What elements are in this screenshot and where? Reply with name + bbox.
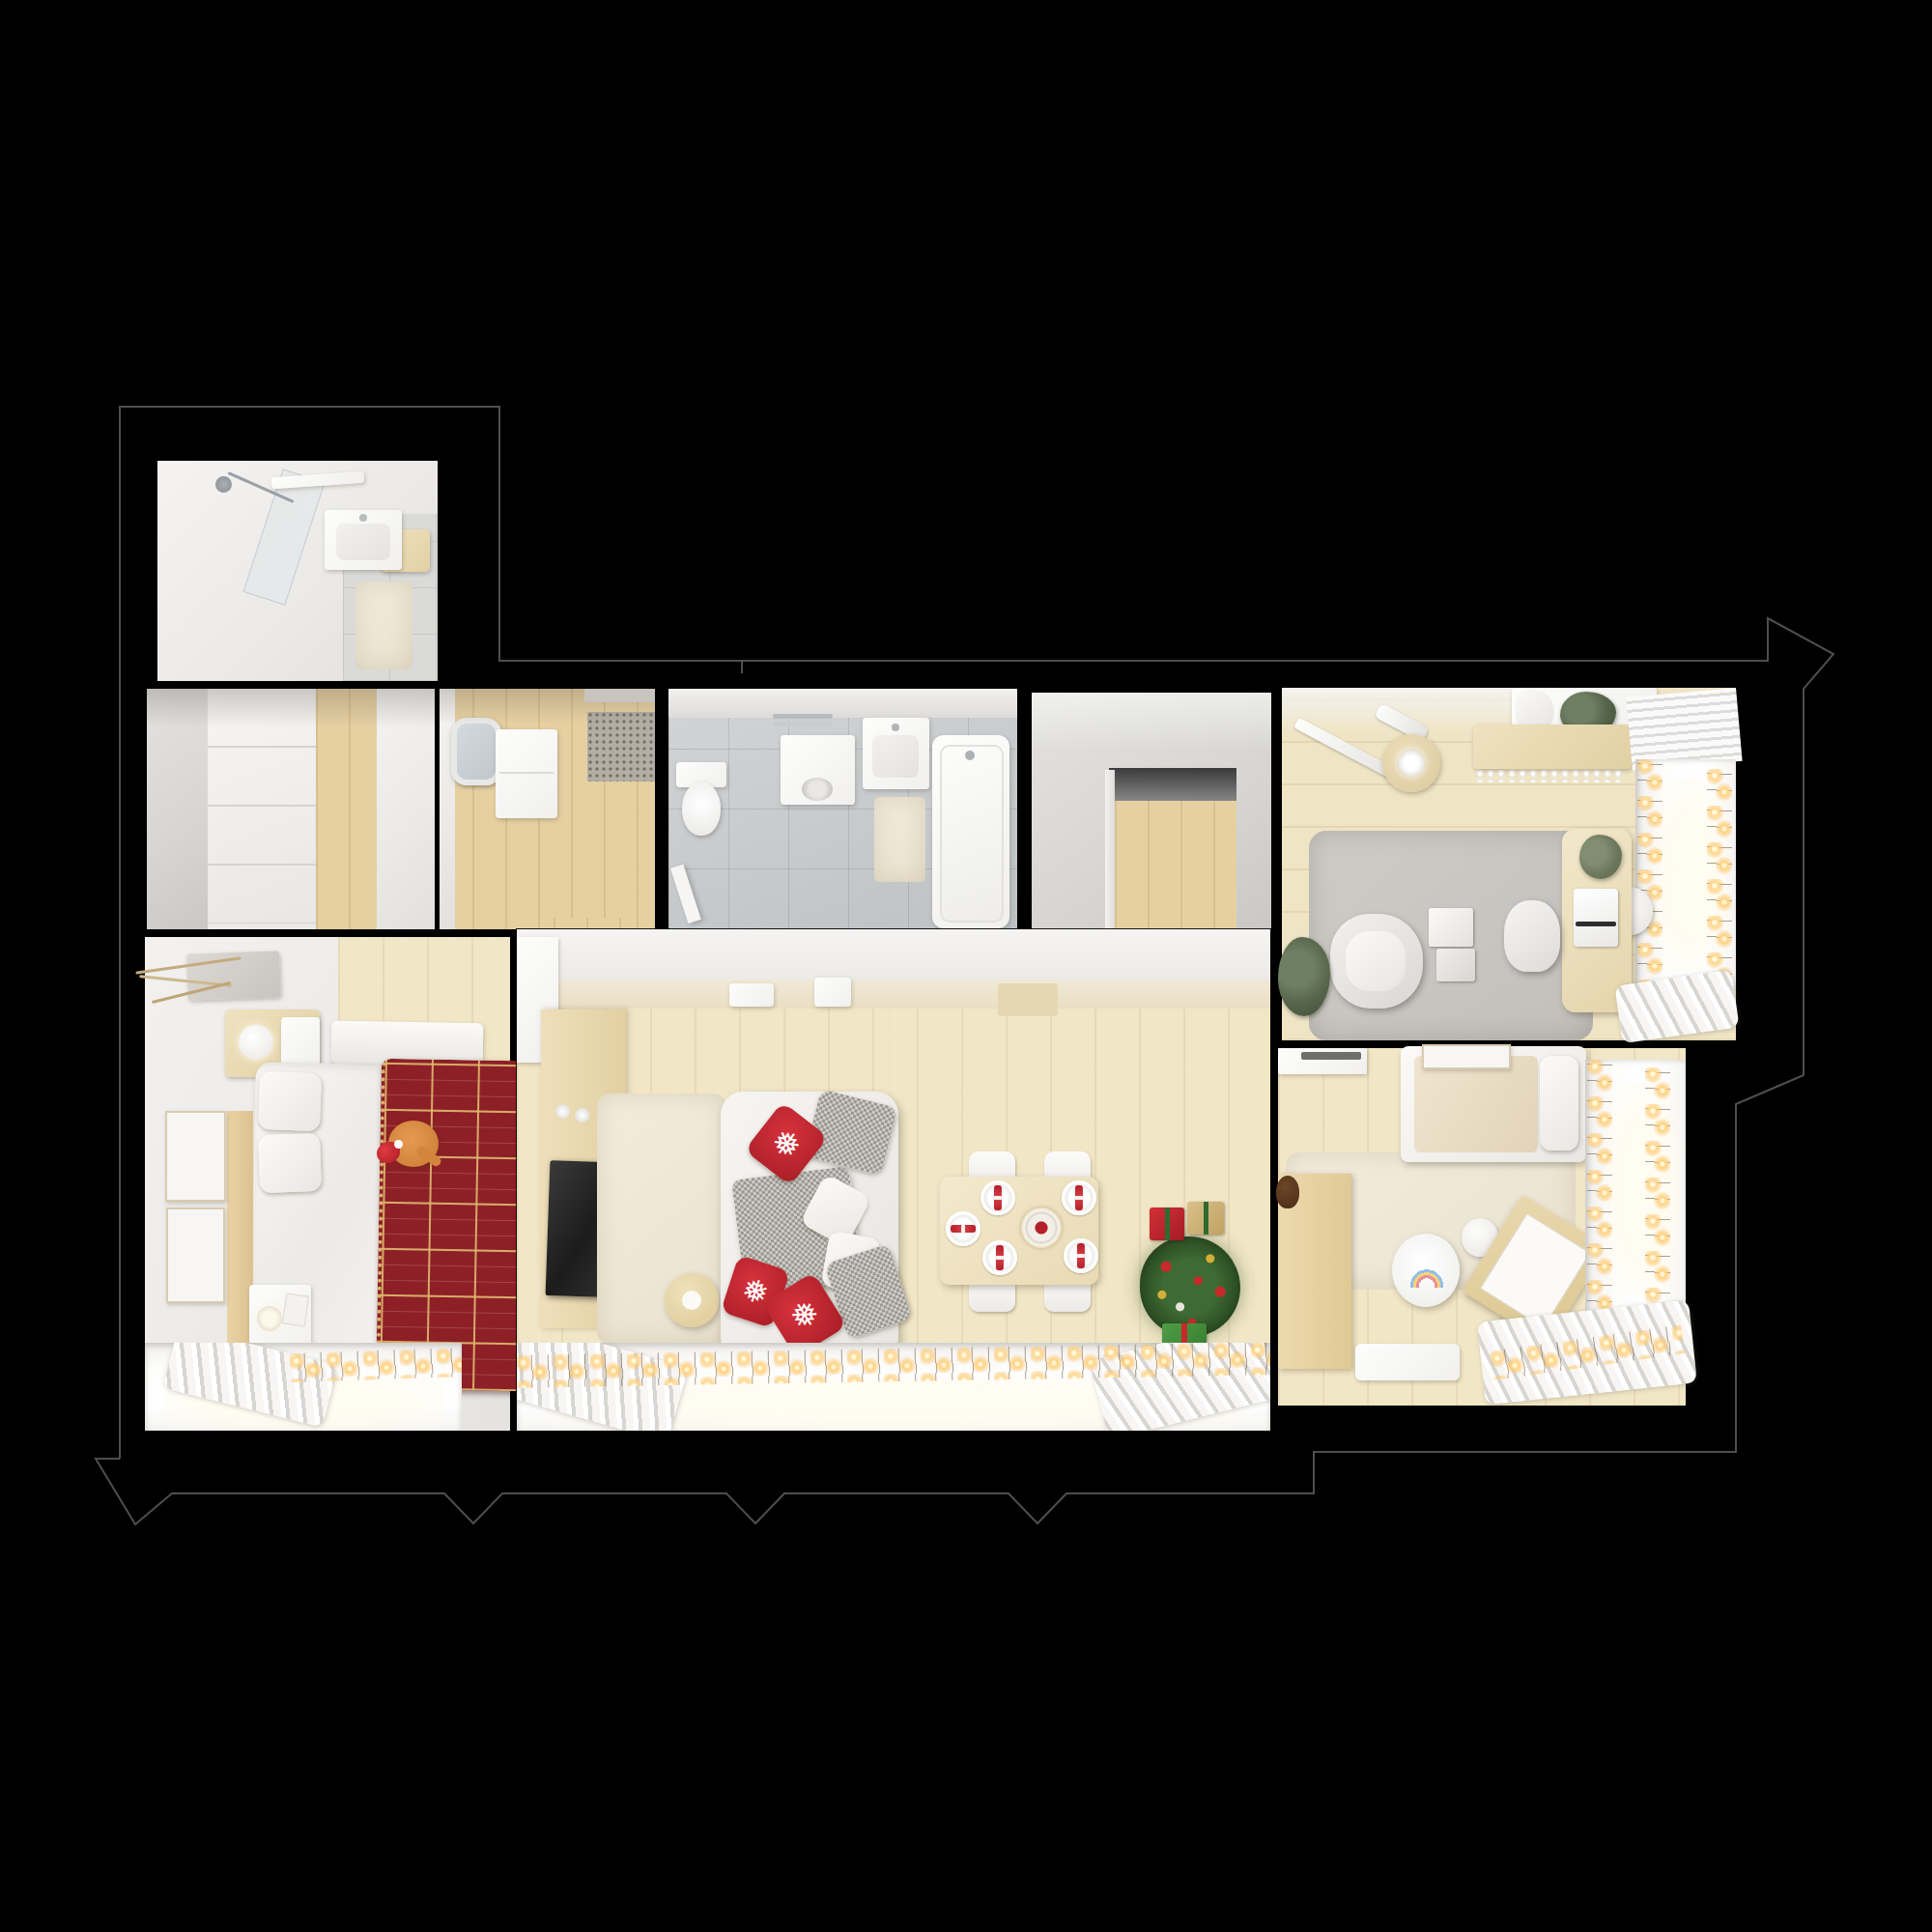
bathroom [668,689,1017,929]
kids-window-lights-2 [1645,1067,1670,1315]
laptop-hinge [1576,922,1616,926]
living-window-band [517,1343,1270,1431]
shower-glass-screen [242,469,325,606]
table-centerpiece [1021,1207,1062,1248]
armchair-cushion [1346,931,1406,991]
gift-gold [1187,1202,1224,1235]
office-window-lights [1637,759,1662,987]
thermostat-plate [814,978,851,1007]
office-cabinet [1473,724,1632,769]
spiky-ornament-icon [1397,749,1426,778]
glitter-garland [1475,769,1625,782]
kids-bed-blanket [1414,1056,1538,1152]
living-doormat [998,983,1058,1016]
kids-bed [1401,1046,1586,1162]
cat-on-bed [377,1117,444,1180]
living-top-wall-beige [517,980,1270,1009]
bedroom [145,937,510,1431]
snowflake-icon: ❅ [782,1291,826,1338]
wardrobe-room [147,689,435,929]
gift-ribbon [1204,1202,1208,1235]
wall-art-frame-2 [166,1207,225,1303]
desk-greenery [1579,835,1622,879]
kids-window-lights [1587,1060,1612,1319]
candle-icon [257,1306,282,1331]
bathroom-sink [863,718,929,789]
office-chair [1492,891,1570,987]
kitchen-doorway-floor [1115,801,1236,932]
dresser-seam [499,772,554,774]
light-switch-plate [729,983,774,1007]
magazine [282,1293,309,1326]
bedroom-window-lights [290,1348,462,1382]
bathroom-sink-basin [872,735,919,778]
kids-drawers [1355,1344,1460,1380]
office-armchair [1330,914,1423,1009]
kitchen-entry-highlight [1032,693,1271,751]
shower-room [157,461,438,681]
place-setting-1 [946,1211,980,1246]
office-window-lights-2 [1707,769,1732,987]
washing-machine [781,735,855,805]
bathroom-sink-faucet-icon [892,724,899,731]
dining-table [940,1177,1098,1285]
bathroom-top-wall [668,689,1017,718]
tv-speaker-icon-2 [575,1108,589,1122]
christmas-tree [1140,1236,1240,1337]
bed-pillow-1 [258,1071,322,1131]
sofa: ❅ ❅ ❅ [721,1092,898,1360]
wall-mirror [451,718,501,785]
toilet-bowl [682,781,721,836]
floor-plan-scene: ❅ ❅ ❅ [0,0,1932,1932]
wall-art-frame-1 [165,1111,226,1202]
santa-hat-pompom [394,1140,403,1149]
place-setting-2 [980,1180,1015,1215]
place-setting-5 [1064,1238,1098,1273]
gift-red [1150,1207,1184,1240]
tv-speaker-icon-1 [555,1104,570,1119]
sink-basin [336,524,390,560]
rainbow-drawing-icon [1406,1253,1448,1288]
bathtub [932,735,1009,928]
bath-mat [355,582,412,669]
shower-head-icon [215,476,232,493]
office-window [1635,759,1736,987]
place-setting-4 [982,1240,1017,1275]
snowflake-icon: ❅ [763,1120,809,1167]
napkin-red [1077,1243,1085,1268]
shower-sink [325,510,402,570]
kids-wardrobe-slot [1301,1052,1361,1060]
living-dining-room: ❅ ❅ ❅ [517,929,1270,1431]
kids-play-table [1392,1234,1460,1307]
bathtub-faucet-icon [965,751,975,760]
office-side-table [1382,734,1440,792]
bed-pillow-2 [258,1133,322,1193]
bathtub-inner [940,745,1004,923]
toilet [676,762,726,839]
living-top-wall [517,929,1270,980]
napkin-red [951,1225,976,1233]
office-blinds [1626,688,1742,771]
bedroom-window-band [145,1343,462,1431]
kitchen-entry-room [1032,693,1271,932]
hallway-shadow [440,689,655,724]
gift-ribbon [1165,1207,1170,1240]
washer-door-icon [802,778,833,801]
laptop [1574,889,1618,947]
bathroom-mat [874,797,925,882]
hallway-dresser [496,729,557,818]
bathroom-door [670,865,701,923]
office-gift-box-1 [1429,908,1473,947]
kids-bed-pillow [1540,1056,1578,1151]
place-setting-3 [1062,1180,1096,1215]
pouf-table [665,1273,719,1327]
napkin-red [994,1185,1002,1210]
sink-faucet-icon [359,514,367,522]
kids-window [1585,1060,1686,1319]
kids-wall-art [1422,1044,1511,1069]
kids-wardrobe [1278,1048,1367,1074]
office-curtain-bottom [1614,970,1739,1043]
home-office [1282,688,1736,1040]
kitchen-door-leaf [1105,770,1115,932]
entry-hallway [440,689,655,929]
office-chair-seat [1504,900,1560,972]
pouf-tray-icon [682,1291,701,1310]
office-gift-box-2 [1436,949,1475,981]
bedside-lamp-icon [239,1025,273,1060]
towel-rail-icon [773,714,833,719]
napkin-red [1075,1185,1083,1210]
wardrobe-top-shadow [147,689,435,727]
kids-room [1278,1048,1686,1406]
teddy-bear [1276,1176,1299,1208]
napkin-red [996,1245,1004,1270]
